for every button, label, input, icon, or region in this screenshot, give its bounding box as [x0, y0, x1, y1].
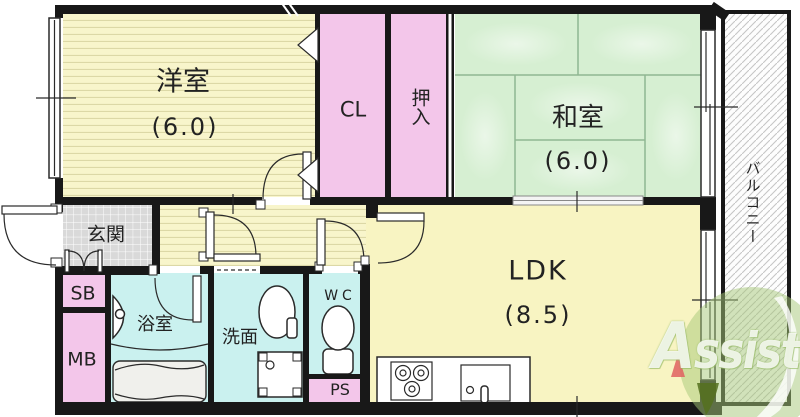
label-japanese-room: 和室 — [552, 105, 604, 131]
toilet-icon — [322, 306, 354, 374]
label-bathroom: 浴室 — [137, 316, 173, 334]
label-shoe-box: SB — [70, 285, 95, 304]
floor-plan: 洋室 (6.0) CL 押入 和室 (6.0) バルコニー 玄関 SB MB 浴… — [0, 0, 800, 417]
label-balcony: バルコニー — [745, 161, 760, 246]
label-ldk: LDK — [508, 258, 568, 285]
label-entrance: 玄関 — [87, 226, 125, 245]
floor-plan-drawing — [0, 0, 800, 417]
label-oshiire: 押入 — [410, 88, 429, 126]
opening-japanese-ldk — [513, 196, 643, 205]
label-western-room-size: (6.0) — [152, 115, 219, 139]
label-japanese-room-size: (6.0) — [545, 149, 612, 173]
bathtub-icon — [113, 361, 206, 402]
door-entrance — [2, 204, 62, 267]
label-western-room: 洋室 — [156, 69, 210, 96]
hallway-floor — [160, 205, 368, 266]
label-closet-cl: CL — [340, 100, 366, 121]
label-ldk-size: (8.5) — [505, 303, 572, 327]
room-western — [63, 13, 315, 197]
label-meter-box: MB — [67, 351, 96, 370]
label-washroom: 洗面 — [222, 329, 258, 347]
washing-machine-icon — [258, 352, 302, 397]
label-ps: PS — [330, 382, 350, 398]
kitchen-counter — [377, 357, 530, 403]
label-wc: WC — [324, 289, 356, 303]
